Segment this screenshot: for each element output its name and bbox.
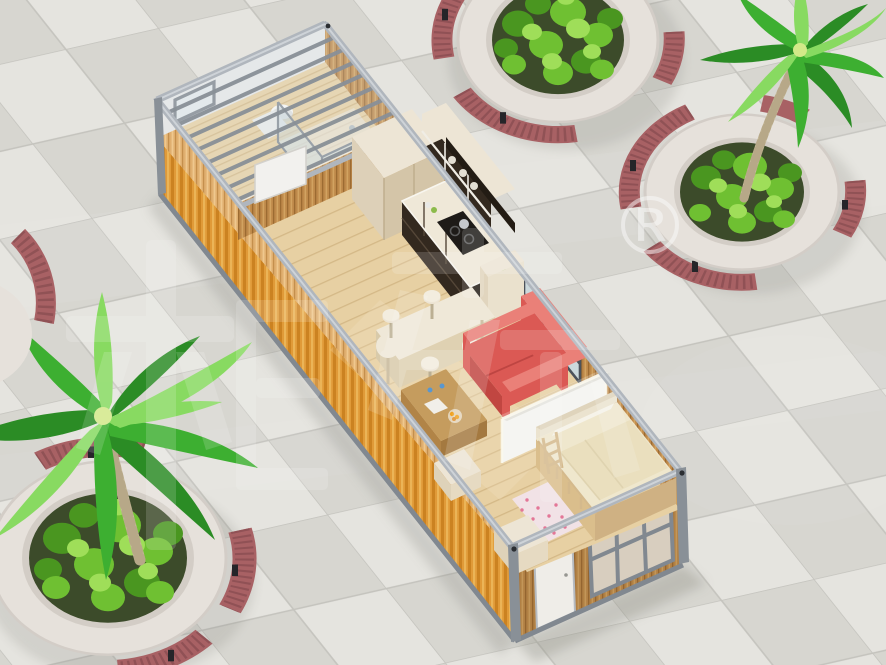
- vignette: [0, 0, 886, 665]
- render-canvas: ®: [0, 0, 886, 665]
